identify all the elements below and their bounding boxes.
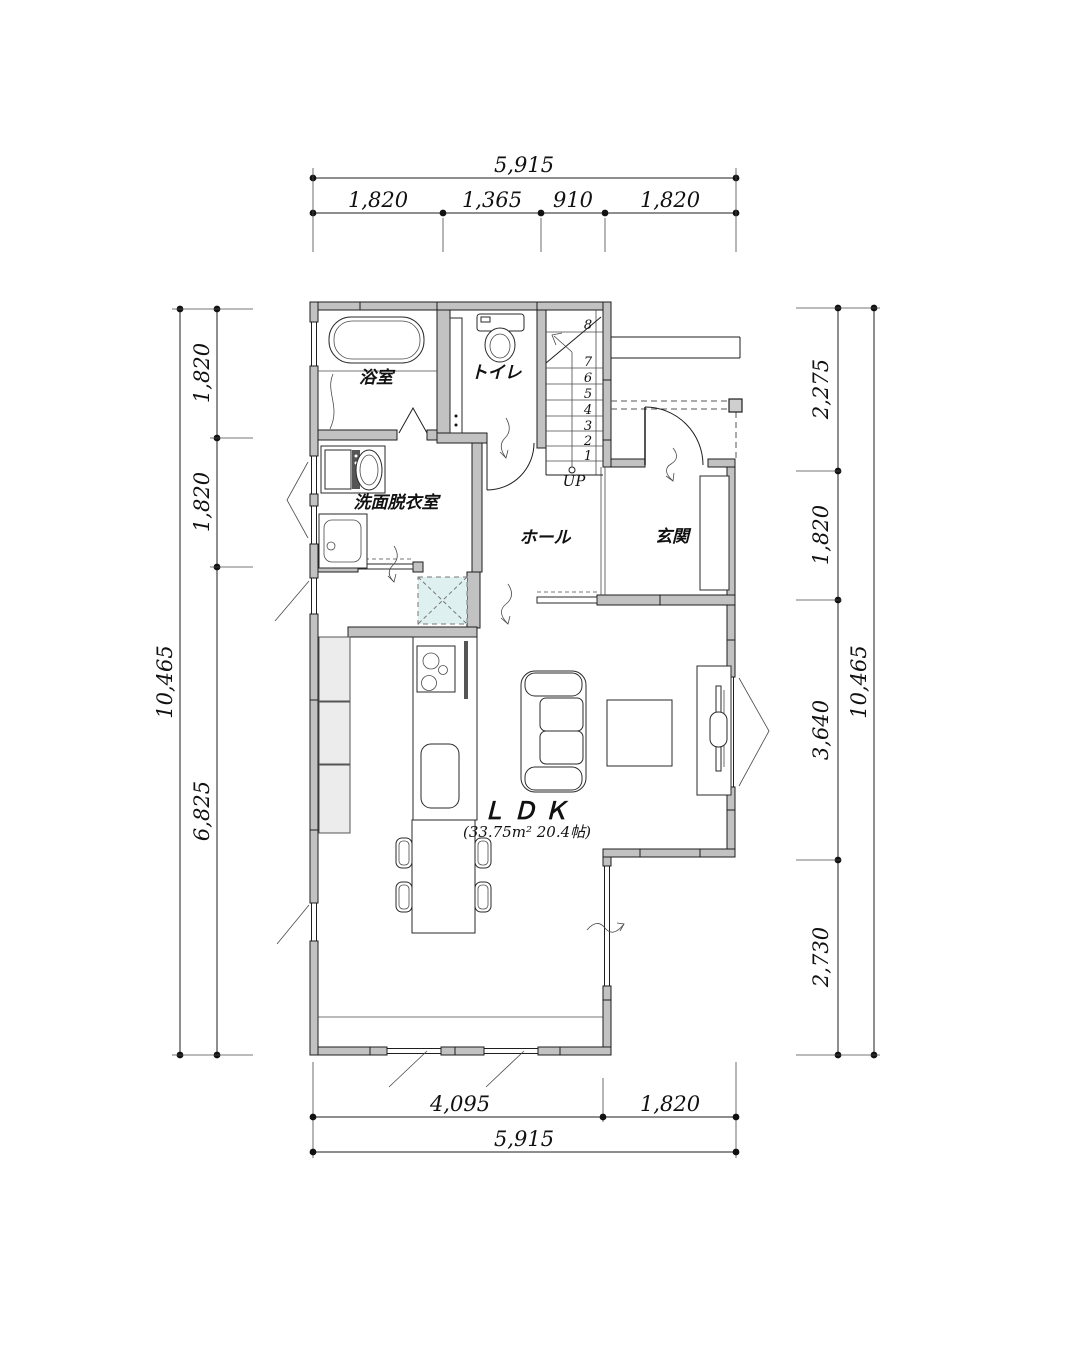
dining-chair-icon [475, 882, 491, 912]
stair-step-3: 3 [584, 419, 592, 434]
dim-bottom-total: 5,915 [494, 1127, 554, 1151]
dim-top-seg4: 1,820 [640, 188, 700, 212]
dim-bottom-seg1: 4,095 [429, 1092, 490, 1116]
shoe-cabinet-icon [700, 476, 729, 590]
porch-canopy [611, 337, 742, 459]
wall-storage-icon [319, 637, 350, 833]
entrance-door-icon [645, 407, 703, 481]
dim-left-seg3: 6,825 [190, 781, 214, 841]
bathroom-drain-line [330, 374, 334, 429]
refrigerator-space-icon [418, 577, 467, 624]
stairs-up-arrow-icon [552, 333, 575, 473]
dim-bottom-seg2: 1,820 [640, 1092, 700, 1116]
living-table-icon [607, 700, 672, 766]
window-ldk-bottom-left-icon [387, 1049, 441, 1088]
ldk-room: ＬＤＫ (33.75m² 20.4帖) [318, 577, 731, 1017]
washroom-label: 洗面脱衣室 [354, 493, 442, 513]
dim-right-seg4: 2,730 [809, 927, 833, 988]
dim-top-total: 5,915 [494, 153, 554, 177]
dining-chair-icon [396, 838, 412, 868]
dim-top-seg1: 1,820 [348, 188, 408, 212]
washroom-room: 洗面脱衣室 [319, 446, 441, 568]
dimension-top: 5,915 1,820 1,365 910 1,820 [310, 153, 740, 252]
dim-right-total: 10,465 [847, 645, 871, 718]
entrance-label: 玄関 [655, 527, 692, 547]
stair-step-1: 1 [584, 449, 592, 464]
window-ldk-casement-icon [727, 677, 769, 787]
dim-left-total: 10,465 [153, 645, 177, 718]
toilet-cabinet-icon [450, 318, 462, 433]
washing-machine-icon [321, 446, 385, 493]
dining-chair-icon [396, 882, 412, 912]
window-ldk-left-lower-icon [277, 903, 317, 944]
hall-sliding-door-icon [501, 584, 597, 624]
stairs: 1 2 3 4 5 6 7 8 UP [546, 310, 603, 490]
tv-board-icon [697, 666, 731, 795]
stair-step-6: 6 [584, 371, 592, 386]
kitchen-sink-icon [421, 744, 459, 808]
ldk-label: ＬＤＫ [482, 796, 575, 825]
toilet-room: トイレ [450, 314, 524, 433]
dim-right-seg3: 3,640 [809, 700, 833, 760]
floor-plan-page: 5,915 1,820 1,365 910 1,820 10,465 1,820… [0, 0, 1080, 1350]
window-bathroom-icon [310, 322, 318, 366]
stair-step-8: 8 [584, 318, 592, 333]
bathroom-room: 浴室 [318, 317, 437, 429]
bathtub-icon [329, 317, 424, 363]
stair-step-4: 4 [583, 403, 592, 418]
toilet-icon [477, 314, 524, 362]
dim-left-seg2: 1,820 [190, 472, 214, 532]
vanity-sink-icon [319, 514, 367, 568]
dining-chair-icon [475, 838, 491, 868]
stairs-up-label: UP [563, 472, 587, 490]
dimension-bottom: 4,095 1,820 5,915 [310, 1062, 740, 1158]
toilet-door-icon [487, 418, 534, 490]
stair-step-7: 7 [584, 355, 593, 370]
dim-right-seg1: 2,275 [809, 359, 833, 420]
dim-top-seg3: 910 [553, 188, 593, 212]
bathroom-folding-door-icon [399, 408, 427, 433]
stair-step-5: 5 [584, 387, 592, 402]
dim-right-seg2: 1,820 [809, 505, 833, 565]
window-ldk-right-icon [587, 866, 624, 986]
kitchen-counter-icon [413, 637, 477, 820]
toilet-label: トイレ [471, 363, 523, 383]
porch-pillar [729, 399, 742, 412]
stair-step-2: 2 [583, 434, 592, 449]
dim-left-seg1: 1,820 [190, 343, 214, 403]
floor-plan-drawing: 5,915 1,820 1,365 910 1,820 10,465 1,820… [0, 0, 1080, 1350]
hall-label: ホール [520, 528, 572, 548]
bathroom-label: 浴室 [359, 368, 396, 388]
dimension-right: 2,275 1,820 3,640 2,730 10,465 [796, 305, 880, 1059]
hall-room: ホール [520, 528, 572, 548]
window-ldk-bottom-right-icon [484, 1049, 538, 1088]
dim-top-seg2: 1,365 [462, 188, 522, 212]
ldk-area-label: (33.75m² 20.4帖) [463, 823, 591, 841]
sofa-icon [521, 671, 586, 792]
dimension-left: 10,465 1,820 1,820 6,825 [153, 306, 253, 1059]
